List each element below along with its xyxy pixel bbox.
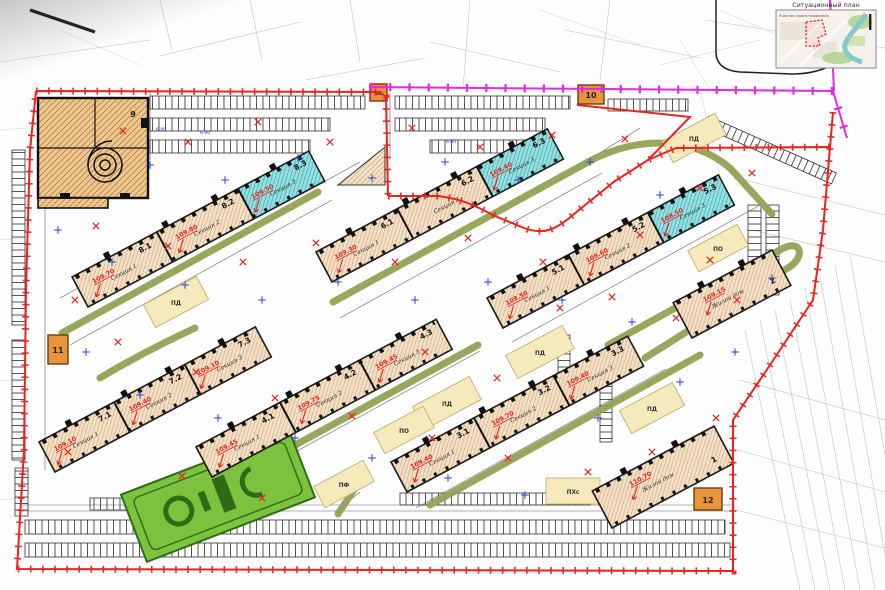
masterplan-canvas: ПД ПД ПД ПО ПФ ПХс ПД ПО ПД 9 Секция 1 8… — [0, 0, 885, 590]
dim-label: 6.00 — [200, 130, 210, 136]
scan-shadow — [0, 0, 420, 80]
playground-label: ПД — [535, 351, 545, 357]
playground-label: ПД — [442, 402, 452, 408]
utility-line — [370, 0, 847, 138]
building-house-2: Жилой дом 2 109.15 — [670, 245, 790, 338]
garage-number: 9 — [130, 110, 136, 119]
playground-label: ПО — [399, 429, 409, 435]
playground-label: ПД — [171, 301, 181, 307]
dim-label: 6.00 — [446, 139, 456, 145]
playground-label: ПФ — [339, 483, 350, 489]
parking-garage-9: 9 — [38, 98, 148, 208]
inset-scale-bar — [869, 14, 871, 30]
playground-label: ПО — [713, 247, 723, 253]
substation-11-number: 11 — [52, 346, 64, 355]
substation-12-number: 12 — [702, 496, 713, 505]
playground-label: ПД — [689, 137, 699, 143]
site-plan-drawing: ПД ПД ПД ПО ПФ ПХс ПД ПО ПД 9 Секция 1 8… — [0, 0, 885, 590]
playground-label: ПХс — [567, 490, 580, 496]
substation-10-number: 10 — [585, 91, 597, 100]
landscape-wedge — [338, 147, 385, 185]
dim-label: 6.00 — [156, 127, 166, 133]
inset-caption: Участок проектирования — [779, 13, 829, 18]
situation-plan-inset: Ситуационный план Участок проектирования — [776, 1, 876, 68]
playground-label: ПД — [647, 407, 657, 413]
inset-title: Ситуационный план — [792, 1, 859, 9]
